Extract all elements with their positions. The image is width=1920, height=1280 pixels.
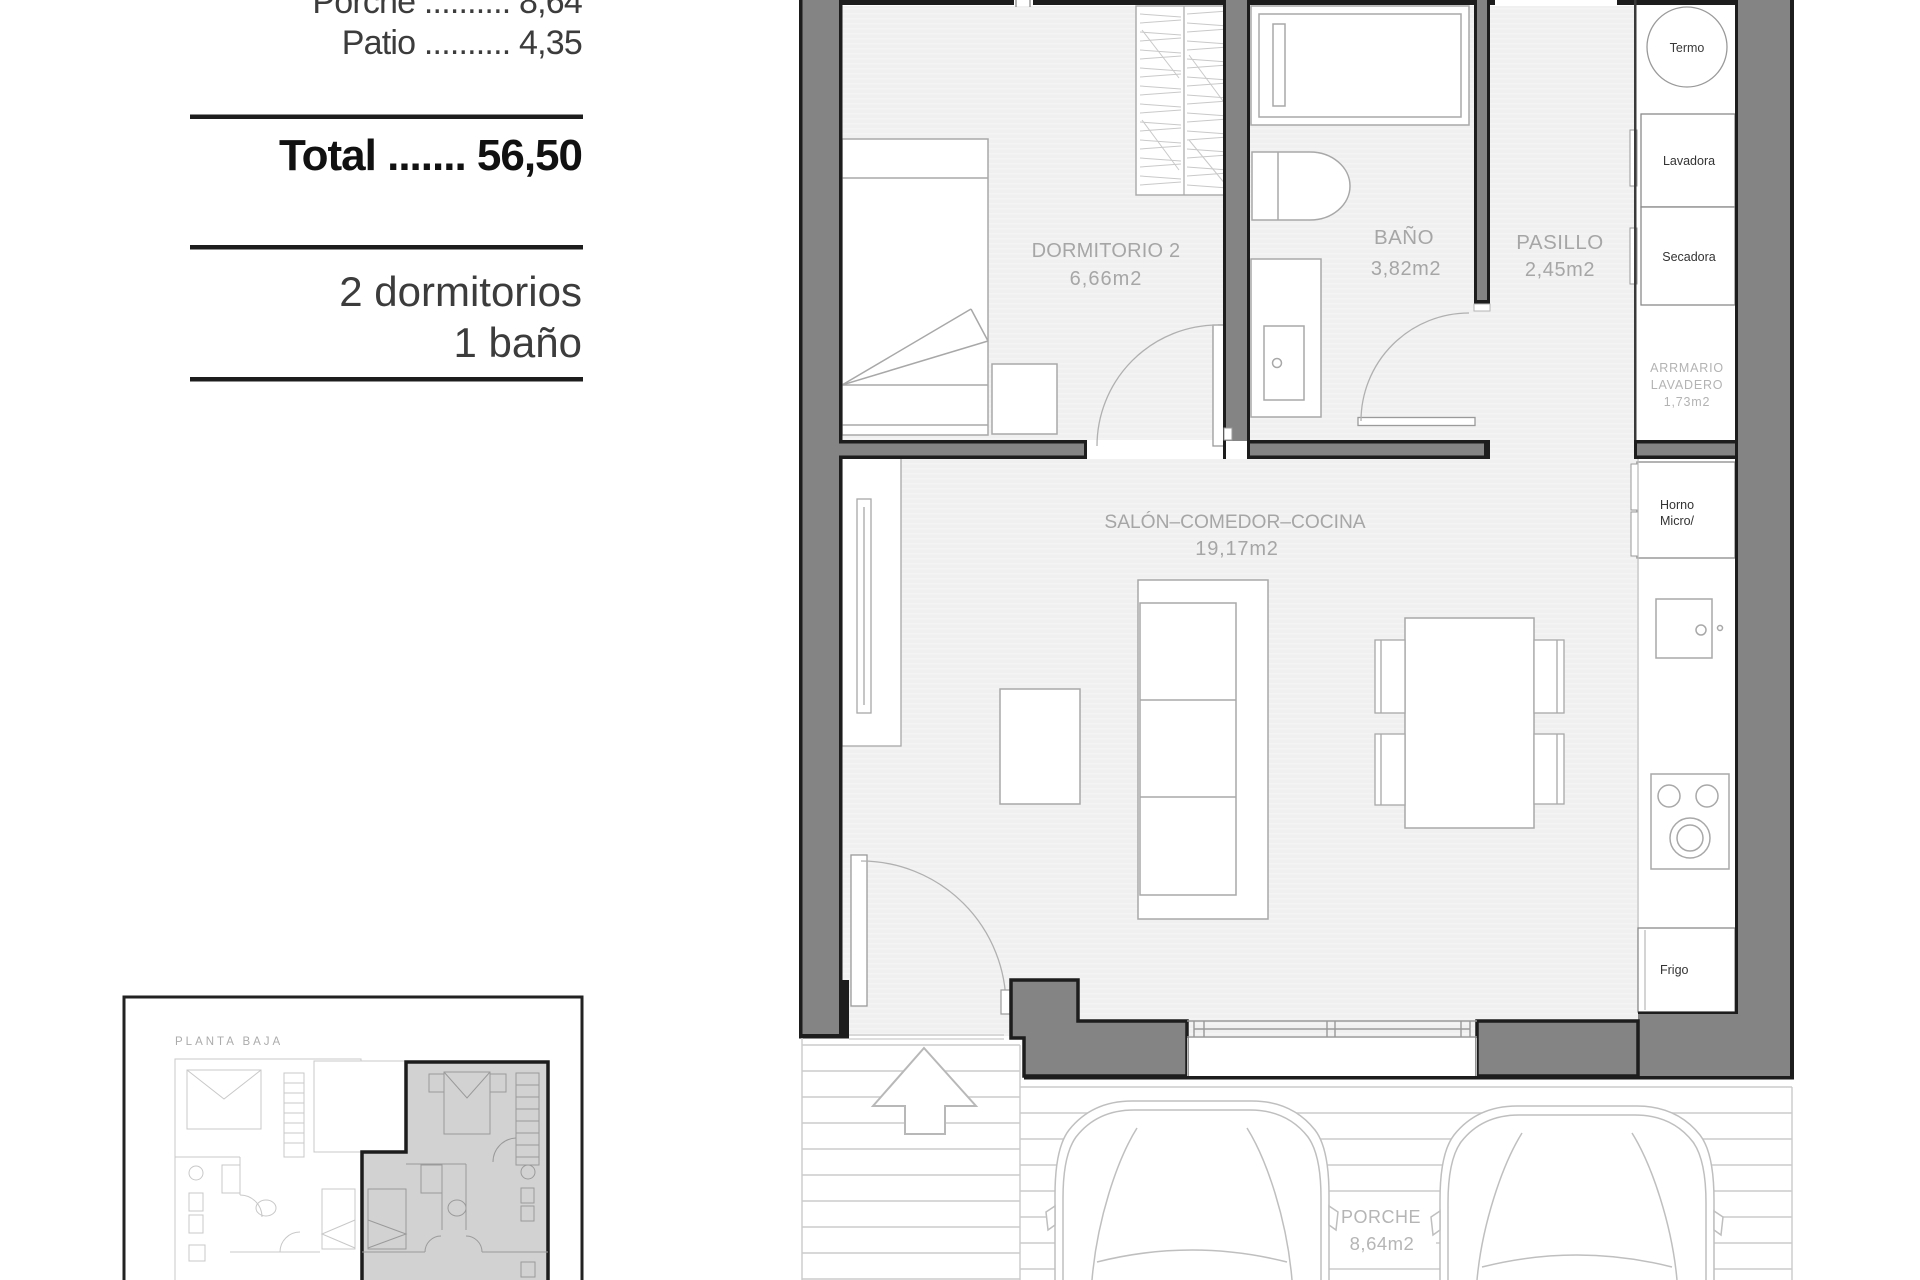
svg-text:19,17m2: 19,17m2 bbox=[1195, 538, 1278, 560]
svg-text:PLANTA BAJA: PLANTA BAJA bbox=[175, 1036, 283, 1048]
svg-text:1,73m2: 1,73m2 bbox=[1664, 395, 1711, 409]
svg-text:PASILLO: PASILLO bbox=[1516, 231, 1603, 254]
svg-text:Horno: Horno bbox=[1660, 498, 1694, 512]
svg-text:LAVADERO: LAVADERO bbox=[1651, 378, 1724, 392]
svg-text:Secadora: Secadora bbox=[1662, 250, 1716, 264]
svg-text:DORMITORIO 2: DORMITORIO 2 bbox=[1032, 240, 1181, 262]
svg-text:1 baño: 1 baño bbox=[454, 319, 582, 366]
svg-text:Micro/: Micro/ bbox=[1660, 514, 1695, 528]
svg-text:Porche .......... 8,64: Porche .......... 8,64 bbox=[312, 0, 582, 21]
svg-text:Total ....... 56,50: Total ....... 56,50 bbox=[279, 131, 582, 180]
svg-text:8,64m2: 8,64m2 bbox=[1350, 1233, 1415, 1254]
svg-text:BAÑO: BAÑO bbox=[1374, 226, 1434, 249]
svg-text:PORCHE: PORCHE bbox=[1341, 1207, 1421, 1227]
svg-text:ARRMARIO: ARRMARIO bbox=[1650, 361, 1724, 375]
svg-text:Frigo: Frigo bbox=[1660, 963, 1689, 977]
svg-text:SALÓN–COMEDOR–COCINA: SALÓN–COMEDOR–COCINA bbox=[1104, 511, 1365, 533]
svg-text:2 dormitorios: 2 dormitorios bbox=[339, 268, 582, 315]
svg-text:Patio .......... 4,35: Patio .......... 4,35 bbox=[342, 24, 582, 62]
svg-text:6,66m2: 6,66m2 bbox=[1070, 268, 1143, 290]
svg-text:2,45m2: 2,45m2 bbox=[1525, 259, 1595, 281]
svg-text:Termo: Termo bbox=[1670, 41, 1705, 55]
svg-text:3,82m2: 3,82m2 bbox=[1371, 258, 1441, 280]
svg-text:Lavadora: Lavadora bbox=[1663, 154, 1715, 168]
